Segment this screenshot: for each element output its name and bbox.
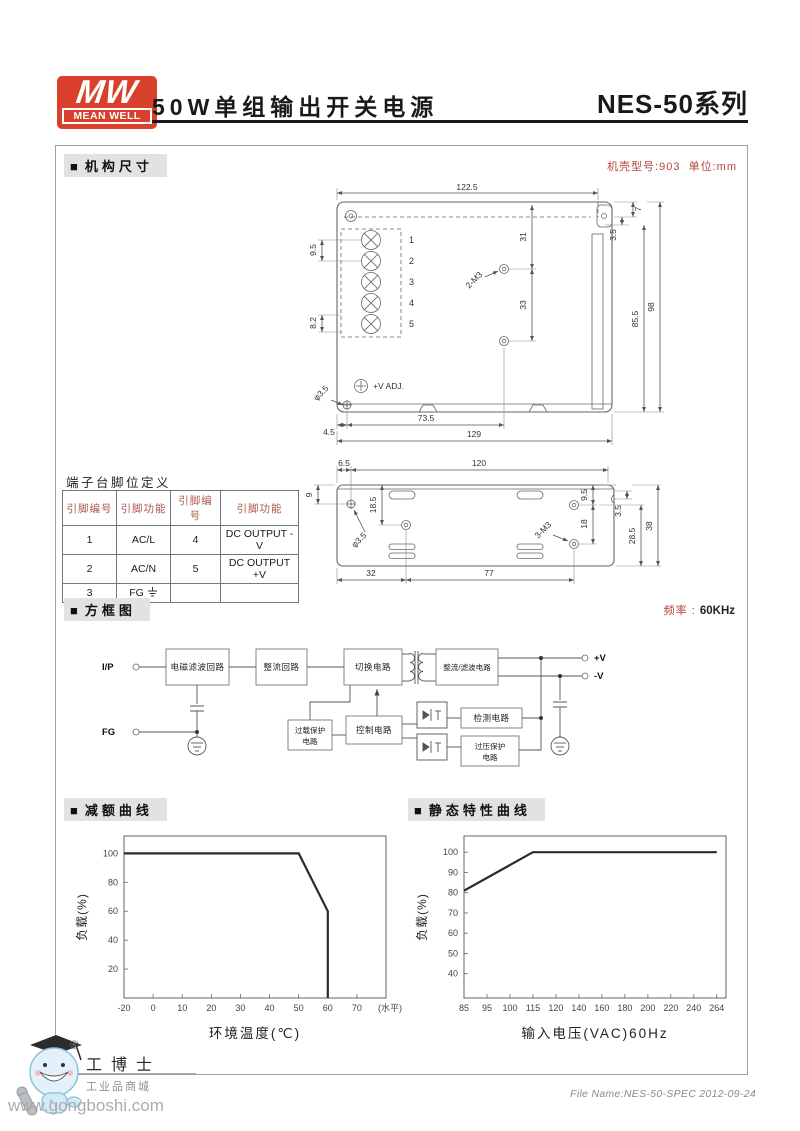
section-bullet-icon: ■ xyxy=(70,159,78,174)
data-curve xyxy=(464,852,717,891)
block-boxes: 电磁滤波回路 整流回路 切换电路 整流/滤波电路 过载保护 电路 控制电路 检测… xyxy=(166,649,522,766)
cell-func: AC/N xyxy=(117,555,171,584)
x-axis-label: 输入电压(VAC)60Hz xyxy=(521,1026,668,1041)
section-mechanical-label: 机构尺寸 xyxy=(85,159,153,174)
pin-label: 5 xyxy=(409,319,414,329)
x-tick-label: 20 xyxy=(206,1003,216,1013)
block-emi-filter: 电磁滤波回路 xyxy=(170,662,224,672)
derating-chart: -20010203040506070(水平)20406080100环境温度(℃)… xyxy=(72,822,402,1060)
section-static-label: 静态特性曲线 xyxy=(429,803,531,818)
x-tick-label: 220 xyxy=(663,1003,678,1013)
x-tick-label: 100 xyxy=(502,1003,517,1013)
y-axis-label: 负载(%) xyxy=(415,893,429,941)
dim-38: 38 xyxy=(644,521,654,531)
unit-note: 单位:mm xyxy=(689,161,737,173)
dim-6-5: 6.5 xyxy=(338,458,350,468)
terminal-table: 引脚编号 引脚功能 引脚编号 引脚功能 1 AC/L 4 DC OUTPUT -… xyxy=(62,490,299,603)
cell-pin xyxy=(171,584,221,603)
block-ovp-line1: 过压保护 xyxy=(475,741,506,751)
block-control: 控制电路 xyxy=(356,725,392,735)
dim-120: 120 xyxy=(472,458,486,468)
input-terminal-label: I/P xyxy=(102,662,114,673)
section-derating: ■减额曲线 xyxy=(64,798,167,821)
dim-18: 18 xyxy=(579,519,589,529)
data-curve xyxy=(124,853,328,998)
vplus-terminal-label: +V xyxy=(594,653,607,664)
block-diagram: I/P FG +V -V 电磁滤波回路 整流回路 切换电路 整流/滤波电路 过载… xyxy=(92,640,672,790)
dim-3-5-bottom: 3.5 xyxy=(613,505,623,517)
cell-pin: 2 xyxy=(63,555,117,584)
x-axis-suffix: (水平) xyxy=(378,1002,402,1013)
dim-33: 33 xyxy=(518,300,528,310)
pin-label: 4 xyxy=(409,298,414,308)
optocoupler-icons xyxy=(417,702,447,760)
block-output-filter: 整流/滤波电路 xyxy=(443,662,491,672)
dim-4-5: 4.5 xyxy=(323,427,335,437)
section-derating-label: 减额曲线 xyxy=(85,803,153,818)
bottom-view-drawing: 6.5 120 9 18.5 φ3.5 3-M3 9.5 18 3.5 28.5 xyxy=(289,458,684,598)
block-rectifier: 整流回路 xyxy=(263,662,299,672)
y-tick-label: 80 xyxy=(448,888,458,898)
x-tick-label: 140 xyxy=(571,1003,586,1013)
section-mechanical: ■机构尺寸 xyxy=(64,154,167,177)
terminal-block xyxy=(362,231,381,334)
cell-func: DC OUTPUT -V xyxy=(221,526,299,555)
bottom-view-dimensions: 6.5 120 9 18.5 φ3.5 3-M3 9.5 18 3.5 28.5 xyxy=(304,458,661,584)
dim-98: 98 xyxy=(646,302,656,312)
block-olp-line2: 电路 xyxy=(302,736,318,746)
x-tick-label: 85 xyxy=(459,1003,469,1013)
pin-label: 3 xyxy=(409,277,414,287)
section-static-curve: ■静态特性曲线 xyxy=(408,798,545,821)
x-tick-label: 160 xyxy=(594,1003,609,1013)
vadj-label: +V ADJ. xyxy=(373,381,404,391)
series-code: NES-50 xyxy=(597,89,694,119)
case-note: 机壳型号:903 单位:mm xyxy=(607,158,737,174)
block-ovp-line2: 电路 xyxy=(482,752,498,762)
col-header: 引脚功能 xyxy=(117,491,171,526)
header-rule xyxy=(152,120,748,123)
dim-73-5: 73.5 xyxy=(418,413,435,423)
y-tick-label: 60 xyxy=(448,928,458,938)
ground-icon xyxy=(147,587,158,598)
gongboshi-brand: 工博士 xyxy=(86,1051,161,1075)
frequency-note: 频率 : 60KHz xyxy=(664,602,735,618)
y-tick-label: 70 xyxy=(448,908,458,918)
x-tick-label: 0 xyxy=(151,1003,156,1013)
section-bullet-icon: ■ xyxy=(414,803,422,818)
gongboshi-url: www.gongboshi.com xyxy=(8,1096,164,1116)
dim-18-5: 18.5 xyxy=(368,496,378,513)
dim-3-5: 3.5 xyxy=(608,229,618,241)
x-tick-label: 40 xyxy=(265,1003,275,1013)
page-title: 50W单组输出开关电源 xyxy=(152,88,438,122)
brand-underline xyxy=(78,1073,196,1074)
hole-callout-phi35: φ3.5 xyxy=(311,383,331,403)
cell-func xyxy=(221,584,299,603)
dim-122-5: 122.5 xyxy=(456,182,478,192)
pin-label: 2 xyxy=(409,256,414,266)
case-model-note: 机壳型号:903 xyxy=(607,161,680,173)
x-tick-label: 30 xyxy=(235,1003,245,1013)
logo-mw-text: MW xyxy=(55,77,159,107)
series-suffix: 系列 xyxy=(694,89,748,119)
y-tick-label: 20 xyxy=(108,964,118,974)
x-tick-label: 10 xyxy=(177,1003,187,1013)
cell-pin: 5 xyxy=(171,555,221,584)
dim-28-5: 28.5 xyxy=(627,527,637,544)
dim-85-5: 85.5 xyxy=(630,310,640,327)
chart-svg: 8595100115120140160180200220240264405060… xyxy=(412,822,742,1060)
x-tick-label: 50 xyxy=(294,1003,304,1013)
cell-pin: 4 xyxy=(171,526,221,555)
section-bullet-icon: ■ xyxy=(70,603,78,618)
dim-9-5-bottom: 9.5 xyxy=(579,489,589,501)
y-tick-label: 50 xyxy=(448,948,458,958)
plot-frame xyxy=(464,836,726,998)
dim-31: 31 xyxy=(518,232,528,242)
content-frame: ■机构尺寸 机壳型号:903 单位:mm 1 2 3 xyxy=(55,145,748,1075)
top-view-drawing: 1 2 3 4 5 +V ADJ. 122.5 31 33 2-M3 xyxy=(289,179,684,457)
static-characteristic-chart: 8595100115120140160180200220240264405060… xyxy=(412,822,742,1060)
terminal-table-title: 端子台脚位定义 xyxy=(66,472,171,491)
y-tick-label: 80 xyxy=(108,877,118,887)
meanwell-logo: MW MEAN WELL xyxy=(57,76,157,129)
y-tick-label: 40 xyxy=(448,969,458,979)
ground-symbols xyxy=(188,737,569,755)
hole-callout-phi35-bottom: φ3.5 xyxy=(349,530,369,550)
y-axis-label: 负载(%) xyxy=(75,893,89,941)
col-header: 引脚编号 xyxy=(63,491,117,526)
x-tick-label: 70 xyxy=(352,1003,362,1013)
block-switching: 切换电路 xyxy=(355,662,391,672)
block-detection: 检测电路 xyxy=(473,713,509,723)
fg-terminal-label: FG xyxy=(102,727,115,738)
hole-callout-2m3: 2-M3 xyxy=(463,269,484,290)
x-tick-label: 200 xyxy=(640,1003,655,1013)
series-title: NES-50系列 xyxy=(597,84,748,121)
logo-meanwell-text: MEAN WELL xyxy=(62,108,152,124)
y-tick-label: 90 xyxy=(448,867,458,877)
x-tick-label: 264 xyxy=(709,1003,724,1013)
cell-func: DC OUTPUT +V xyxy=(221,555,299,584)
x-tick-label: 60 xyxy=(323,1003,333,1013)
dim-32: 32 xyxy=(366,568,376,578)
x-tick-label: 95 xyxy=(482,1003,492,1013)
freq-label: 频率 : xyxy=(664,605,696,617)
vminus-terminal-label: -V xyxy=(594,671,604,682)
hole-callout-3m3: 3-M3 xyxy=(532,519,553,540)
x-tick-label: -20 xyxy=(117,1003,130,1013)
dim-9: 9 xyxy=(304,492,314,497)
x-axis-label: 环境温度(℃) xyxy=(209,1026,301,1041)
y-tick-label: 100 xyxy=(103,848,118,858)
pin-label: 1 xyxy=(409,235,414,245)
section-block-label: 方框图 xyxy=(85,603,136,618)
gongboshi-tagline: 工业品商城 xyxy=(86,1078,151,1094)
y-tick-label: 60 xyxy=(108,906,118,916)
dim-129: 129 xyxy=(467,429,481,439)
col-header: 引脚编号 xyxy=(171,491,221,526)
x-tick-label: 240 xyxy=(686,1003,701,1013)
table-row: 1 AC/L 4 DC OUTPUT -V xyxy=(63,526,299,555)
x-tick-label: 180 xyxy=(617,1003,632,1013)
dim-8-2: 8.2 xyxy=(308,317,318,329)
y-tick-label: 100 xyxy=(443,847,458,857)
top-view-case: 1 2 3 4 5 +V ADJ. xyxy=(337,202,612,412)
section-block-diagram: ■方框图 xyxy=(64,598,150,621)
x-tick-label: 115 xyxy=(526,1003,540,1013)
table-row: 2 AC/N 5 DC OUTPUT +V xyxy=(63,555,299,584)
x-tick-label: 120 xyxy=(548,1003,563,1013)
section-bullet-icon: ■ xyxy=(70,803,78,818)
plot-frame xyxy=(124,836,386,998)
dim-77: 77 xyxy=(484,568,494,578)
cell-func: AC/L xyxy=(117,526,171,555)
col-header: 引脚功能 xyxy=(221,491,299,526)
dim-9-5: 9.5 xyxy=(308,244,318,256)
dim-7: 7 xyxy=(633,206,643,211)
top-view-dimensions: 122.5 31 33 2-M3 9.5 8.2 7 3.5 85.5 xyxy=(308,182,664,445)
block-olp-line1: 过载保护 xyxy=(295,725,326,735)
table-header-row: 引脚编号 引脚功能 引脚编号 引脚功能 xyxy=(63,491,299,526)
registered-mark: ® xyxy=(70,1038,79,1052)
freq-value: 60KHz xyxy=(700,605,735,617)
bottom-view-case xyxy=(337,485,614,566)
cell-pin: 1 xyxy=(63,526,117,555)
y-tick-label: 40 xyxy=(108,935,118,945)
file-name-footer: File Name:NES-50-SPEC 2012-09-24 xyxy=(570,1088,756,1100)
chart-svg: -20010203040506070(水平)20406080100环境温度(℃)… xyxy=(72,822,402,1060)
